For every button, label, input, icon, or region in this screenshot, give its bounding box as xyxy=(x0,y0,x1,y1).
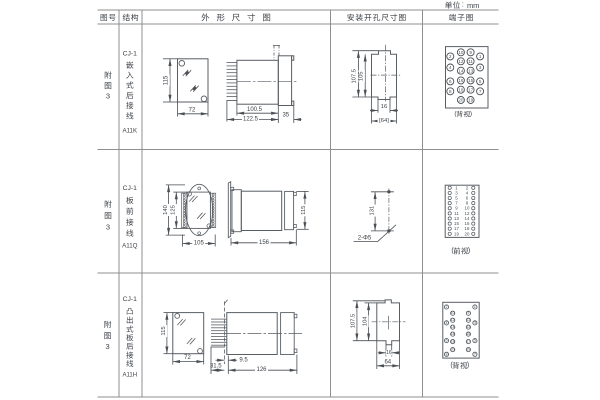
svg-text:A11K: A11K xyxy=(122,128,138,135)
svg-text:16: 16 xyxy=(381,104,387,110)
svg-text:11: 11 xyxy=(468,59,473,64)
svg-text:): ) xyxy=(467,362,469,369)
svg-text:115: 115 xyxy=(161,326,167,335)
svg-text:7: 7 xyxy=(479,89,482,94)
svg-text:6: 6 xyxy=(445,339,447,343)
svg-text:10: 10 xyxy=(458,50,464,55)
svg-text:17: 17 xyxy=(467,340,471,344)
svg-text:1: 1 xyxy=(479,54,482,59)
svg-text:20: 20 xyxy=(451,348,455,352)
svg-text:5: 5 xyxy=(479,79,482,84)
svg-text:A11H: A11H xyxy=(123,372,138,378)
svg-text:8: 8 xyxy=(445,352,447,356)
svg-text:125: 125 xyxy=(171,205,177,215)
svg-text:105: 105 xyxy=(194,241,205,247)
svg-text:35: 35 xyxy=(282,112,289,118)
svg-text:9: 9 xyxy=(469,50,472,55)
svg-text:115: 115 xyxy=(163,75,169,85)
svg-text:104: 104 xyxy=(362,316,368,326)
svg-text:19: 19 xyxy=(468,98,474,103)
svg-text:9.5: 9.5 xyxy=(239,357,248,363)
svg-text:18: 18 xyxy=(451,340,455,344)
svg-text:CJ-1: CJ-1 xyxy=(123,51,138,58)
svg-text:3: 3 xyxy=(106,342,110,351)
svg-text:72: 72 xyxy=(189,107,196,113)
svg-text:2-Φ5: 2-Φ5 xyxy=(358,235,372,241)
svg-text:122.5: 122.5 xyxy=(243,117,259,123)
svg-text:3: 3 xyxy=(479,65,482,70)
svg-text:9: 9 xyxy=(467,311,469,315)
svg-text:8: 8 xyxy=(449,89,452,94)
svg-text:11: 11 xyxy=(467,318,471,322)
svg-text:13: 13 xyxy=(467,325,471,329)
svg-text:A11Q: A11Q xyxy=(122,243,138,250)
svg-text:107.5: 107.5 xyxy=(350,314,356,329)
svg-text:131: 131 xyxy=(370,206,376,216)
svg-text:107.5: 107.5 xyxy=(351,69,357,84)
svg-text:19: 19 xyxy=(454,231,459,236)
svg-text:4: 4 xyxy=(445,321,447,325)
svg-text:15: 15 xyxy=(467,332,471,336)
svg-text:3: 3 xyxy=(474,321,476,325)
svg-text:126: 126 xyxy=(256,367,267,373)
svg-text:156: 156 xyxy=(259,240,270,246)
svg-text:CJ-1: CJ-1 xyxy=(123,185,138,192)
svg-text:18: 18 xyxy=(458,87,464,92)
svg-text:16: 16 xyxy=(458,78,464,83)
svg-text:3: 3 xyxy=(106,223,110,232)
svg-text:15: 15 xyxy=(468,78,474,83)
svg-text:14: 14 xyxy=(451,325,455,329)
svg-text:10: 10 xyxy=(451,311,455,315)
svg-text:13: 13 xyxy=(468,68,474,73)
svg-text:[64]: [64] xyxy=(379,118,389,124)
svg-text:7: 7 xyxy=(474,352,476,356)
svg-text:20: 20 xyxy=(458,98,464,103)
svg-text:115: 115 xyxy=(301,206,307,215)
svg-text:140: 140 xyxy=(163,205,169,215)
svg-text::: : xyxy=(462,2,464,9)
svg-text:20: 20 xyxy=(465,231,470,236)
svg-text:2: 2 xyxy=(449,54,452,59)
svg-text:64: 64 xyxy=(384,359,391,365)
svg-text:): ) xyxy=(470,111,472,118)
svg-text:2: 2 xyxy=(445,305,447,309)
svg-text:CJ-1: CJ-1 xyxy=(123,296,138,303)
svg-text:3: 3 xyxy=(106,91,110,100)
svg-text:12: 12 xyxy=(458,59,464,64)
svg-text:4: 4 xyxy=(449,65,452,70)
svg-text:19: 19 xyxy=(467,348,471,352)
svg-text:5: 5 xyxy=(474,339,476,343)
svg-text:): ) xyxy=(468,247,470,254)
svg-text:16: 16 xyxy=(451,332,455,336)
svg-text:16: 16 xyxy=(386,350,392,356)
svg-text:1: 1 xyxy=(474,305,476,309)
svg-text:17: 17 xyxy=(468,87,474,92)
svg-text:6: 6 xyxy=(449,79,452,84)
svg-text:12: 12 xyxy=(451,318,455,322)
svg-text:mm: mm xyxy=(467,1,480,10)
svg-text:72: 72 xyxy=(184,355,191,361)
svg-text:31.5: 31.5 xyxy=(210,364,222,370)
svg-text:100.5: 100.5 xyxy=(247,107,263,113)
svg-text:14: 14 xyxy=(458,68,464,73)
svg-text:105: 105 xyxy=(359,71,365,81)
